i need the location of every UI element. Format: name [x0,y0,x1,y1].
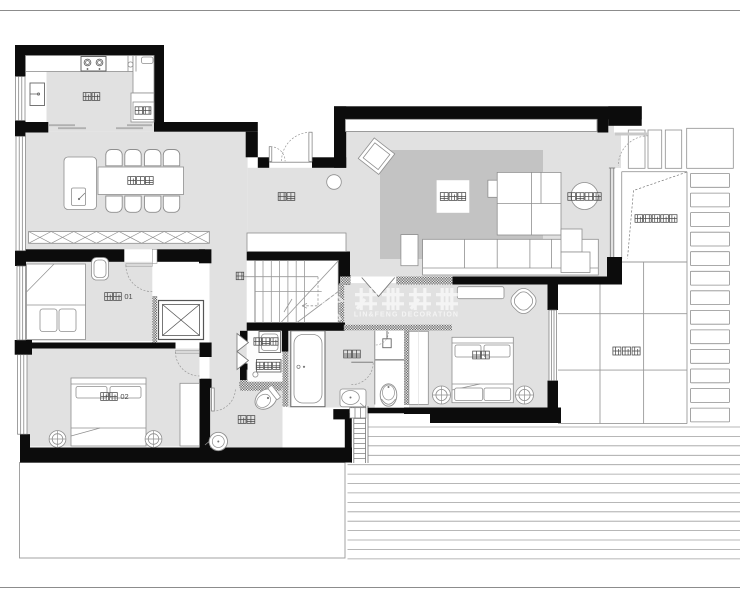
svg-text:01: 01 [124,292,132,301]
svg-text:02: 02 [120,392,128,401]
svg-text:LIN&FENG DECORATION: LIN&FENG DECORATION [354,311,459,318]
